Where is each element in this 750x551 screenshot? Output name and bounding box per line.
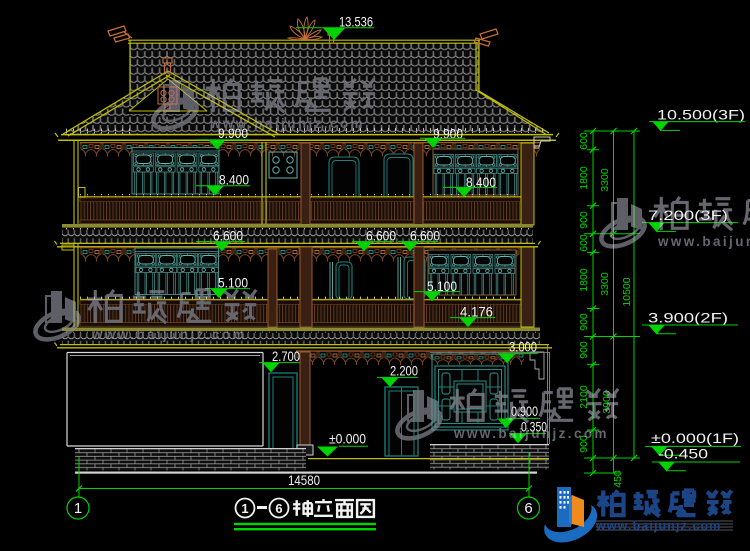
svg-text:450: 450 [612,470,624,488]
svg-text:900: 900 [578,211,590,229]
svg-text:3300: 3300 [599,168,611,192]
svg-text:1800: 1800 [578,166,590,190]
svg-text:600: 600 [578,132,590,150]
svg-text:10500: 10500 [621,277,633,306]
svg-text:3.000: 3.000 [509,340,537,355]
svg-text:3.900(2F): 3.900(2F) [648,311,728,326]
svg-text:-0.450: -0.450 [658,447,708,462]
svg-text:900: 900 [578,313,590,331]
svg-text:±0.000(1F): ±0.000(1F) [651,431,739,446]
svg-text:8.400: 8.400 [219,173,249,188]
svg-text:1: 1 [241,501,248,516]
svg-text:1: 1 [74,500,82,517]
svg-text:3300: 3300 [599,272,611,296]
svg-text:6: 6 [524,500,532,517]
svg-text:2.700: 2.700 [272,349,300,364]
svg-text:www.baijunjz.com: www.baijunjz.com [595,519,721,533]
svg-text:6: 6 [275,501,282,516]
svg-text:2.200: 2.200 [390,364,418,379]
svg-text:14580: 14580 [288,473,320,488]
svg-text:900: 900 [578,341,590,359]
svg-text:10.500(3F): 10.500(3F) [657,108,745,123]
svg-text:13.536: 13.536 [339,15,373,30]
svg-text:600: 600 [578,234,590,252]
svg-text:1800: 1800 [578,268,590,292]
svg-text:±0.000: ±0.000 [329,432,366,447]
